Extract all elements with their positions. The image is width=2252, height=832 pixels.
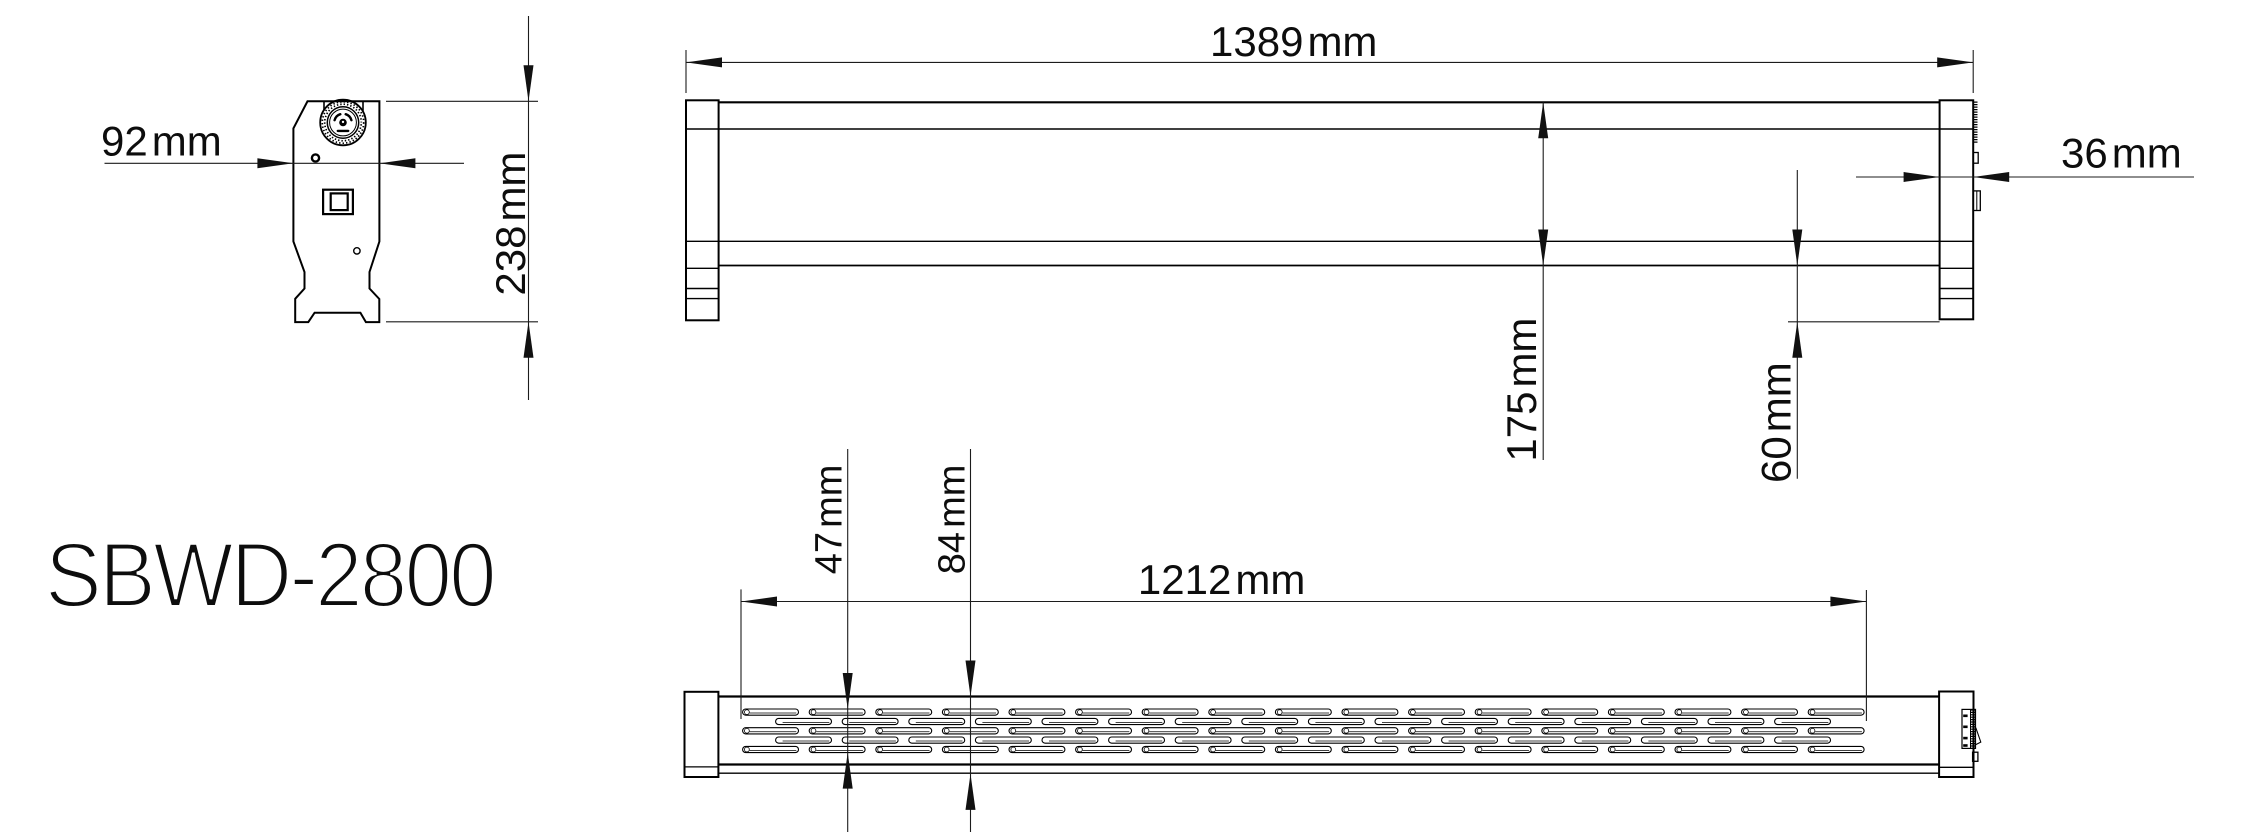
svg-text:1389mm: 1389mm — [1210, 18, 1377, 65]
svg-text:36mm: 36mm — [2061, 130, 2182, 177]
svg-text:1212mm: 1212mm — [1138, 556, 1305, 603]
svg-text:92mm: 92mm — [101, 117, 222, 164]
svg-text:47mm: 47mm — [809, 465, 851, 575]
svg-text:84mm: 84mm — [932, 465, 974, 575]
svg-text:SBWD-2800: SBWD-2800 — [45, 524, 494, 627]
svg-text:60mm: 60mm — [1753, 362, 1800, 483]
